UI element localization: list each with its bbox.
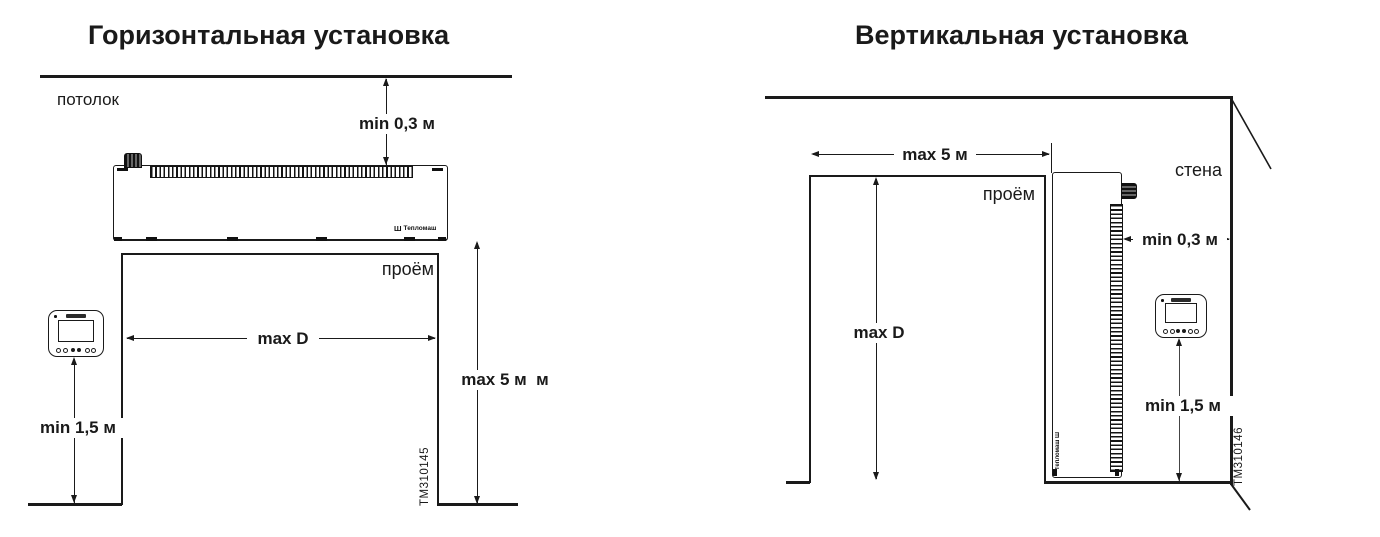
arrowhead-left-icon — [126, 335, 134, 341]
ceiling-label: потолок — [57, 90, 119, 110]
unit-intake-grille — [150, 166, 413, 178]
arrowhead-up-icon — [1176, 338, 1182, 346]
installation-diagram-page: Горизонтальная установка потолок min 0,3… — [0, 0, 1380, 537]
arrowhead-left-icon — [1123, 236, 1131, 242]
dim-label-opening-width: max 5 м — [894, 145, 976, 165]
remote-indicator-dot — [1161, 299, 1164, 302]
unit-foot — [146, 237, 157, 241]
dim-label-remote-height: min 1,5 м — [1125, 396, 1241, 416]
wall-label: стена — [1175, 160, 1222, 181]
arrowhead-down-icon — [71, 495, 77, 503]
drawing-code: TM310145 — [419, 446, 431, 506]
dim-label-opening-width: max D — [247, 329, 319, 349]
arrowhead-down-icon — [1176, 473, 1182, 481]
wall-corner-diagonal-top — [1231, 98, 1271, 169]
unit-foot — [404, 237, 415, 241]
arrowhead-left-icon — [811, 151, 819, 157]
opening-label: проём — [975, 184, 1035, 205]
dim-label-opening-height: max 5 м м — [456, 370, 554, 390]
remote-button — [1194, 329, 1199, 334]
unit-foot — [227, 237, 238, 241]
remote-brand-bar — [66, 314, 86, 318]
opening-label: проём — [370, 259, 434, 280]
remote-button — [77, 348, 82, 353]
remote-buttons — [1163, 329, 1199, 334]
teplomash-trident-icon: Ш — [1055, 432, 1061, 438]
brand-logo-text: Тепломаш — [1055, 440, 1061, 470]
dim-label-ceiling-clearance: min 0,3 м — [352, 114, 442, 134]
remote-button — [63, 348, 68, 353]
right-diagram-title: Вертикальная установка — [855, 20, 1188, 51]
remote-buttons — [56, 348, 96, 353]
unit-end-mark-left — [117, 168, 128, 171]
arrowhead-up-icon — [71, 357, 77, 365]
remote-button — [91, 348, 96, 353]
unit-foot — [316, 237, 327, 241]
remote-button — [71, 348, 76, 353]
remote-indicator-dot — [54, 315, 57, 318]
arrowhead-right-icon — [428, 335, 436, 341]
unit-foot — [114, 237, 122, 241]
remote-button — [1188, 329, 1193, 334]
teplomash-trident-icon: Ш — [394, 225, 402, 233]
remote-brand-bar — [1171, 298, 1191, 302]
remote-screen — [58, 320, 94, 342]
unit-foot — [438, 237, 446, 241]
unit-foot — [1115, 469, 1119, 476]
drawing-code: TM310146 — [1233, 424, 1245, 486]
left-diagram-title: Горизонтальная установка — [88, 20, 449, 51]
remote-button — [1170, 329, 1175, 334]
arrowhead-up-icon — [873, 177, 879, 185]
unit-end-mark-right — [432, 168, 443, 171]
dim-label-wall-clearance: min 0,3 м — [1133, 230, 1227, 250]
brand-logo-text: Тепломаш — [404, 225, 437, 232]
remote-button — [1182, 329, 1187, 334]
brand-logo: Тепломаш Ш — [1055, 428, 1061, 470]
remote-button — [85, 348, 90, 353]
cable-gland — [1121, 183, 1137, 199]
arrowhead-down-icon — [474, 496, 480, 504]
remote-control — [48, 310, 104, 357]
remote-button — [1176, 329, 1181, 334]
remote-button — [56, 348, 61, 353]
dim-label-remote-height: min 1,5 м — [18, 418, 138, 438]
remote-screen — [1165, 303, 1197, 323]
remote-button — [1163, 329, 1168, 334]
arrowhead-down-icon — [383, 157, 389, 165]
wall-corner-diagonal-bottom — [1231, 484, 1250, 510]
arrowhead-up-icon — [474, 241, 480, 249]
arrowhead-right-icon — [1042, 151, 1050, 157]
arrowhead-down-icon — [873, 472, 879, 480]
dim-label-opening-height: max D — [844, 323, 914, 343]
brand-logo: Ш Тепломаш — [394, 225, 436, 233]
remote-control — [1155, 294, 1207, 338]
arrowhead-up-icon — [383, 78, 389, 86]
unit-foot — [1053, 469, 1057, 476]
wall-edge-diagonals — [0, 0, 1380, 537]
unit-intake-grille — [1110, 204, 1123, 472]
cable-gland — [124, 153, 142, 168]
